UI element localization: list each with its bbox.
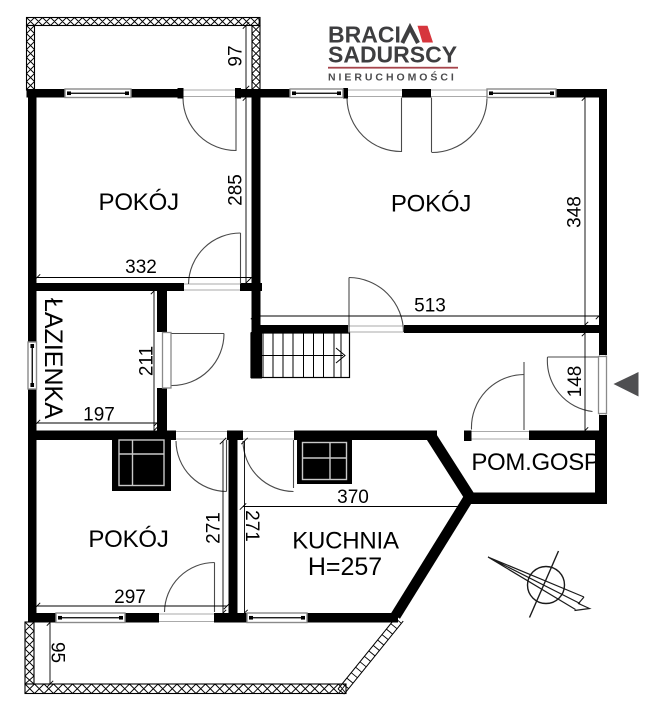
svg-text:95: 95: [47, 642, 68, 663]
svg-text:348: 348: [565, 196, 586, 228]
svg-text:211: 211: [137, 346, 158, 376]
svg-text:POM.GOSP: POM.GOSP: [471, 449, 599, 476]
svg-text:297: 297: [114, 587, 146, 608]
svg-text:271: 271: [204, 512, 225, 544]
svg-text:NIERUCHOMOŚCI: NIERUCHOMOŚCI: [328, 70, 457, 83]
svg-text:285: 285: [226, 174, 247, 206]
svg-text:197: 197: [83, 405, 115, 426]
svg-text:148: 148: [565, 366, 586, 398]
svg-text:H=257: H=257: [308, 553, 382, 581]
svg-text:POKÓJ: POKÓJ: [99, 189, 179, 216]
svg-text:POKÓJ: POKÓJ: [88, 526, 168, 553]
svg-text:POKÓJ: POKÓJ: [391, 191, 471, 218]
svg-text:370: 370: [337, 487, 369, 508]
svg-text:ŁAZIENKA: ŁAZIENKA: [39, 298, 67, 419]
svg-text:KUCHNIA: KUCHNIA: [292, 528, 399, 555]
svg-text:97: 97: [226, 45, 247, 66]
svg-text:271: 271: [241, 510, 262, 542]
svg-text:332: 332: [125, 257, 157, 278]
svg-text:SADURSCY: SADURSCY: [328, 42, 457, 68]
svg-text:513: 513: [414, 296, 446, 317]
